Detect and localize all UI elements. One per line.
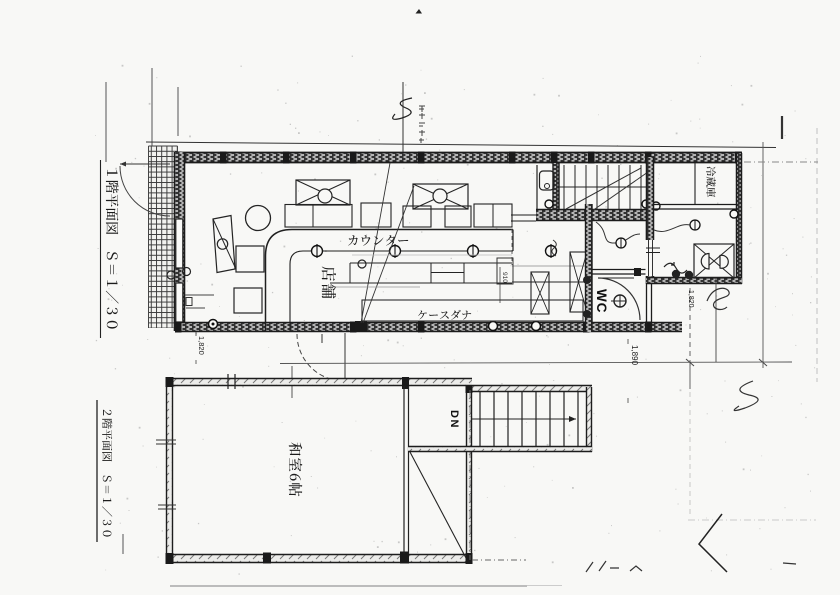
- svg-text:WC: WC: [594, 289, 609, 314]
- svg-text:1,890: 1,890: [630, 345, 639, 366]
- svg-text:DN: DN: [448, 410, 460, 429]
- svg-text:1,820: 1,820: [197, 336, 206, 355]
- svg-text:1,820: 1,820: [687, 290, 694, 308]
- svg-text:910: 910: [501, 272, 508, 283]
